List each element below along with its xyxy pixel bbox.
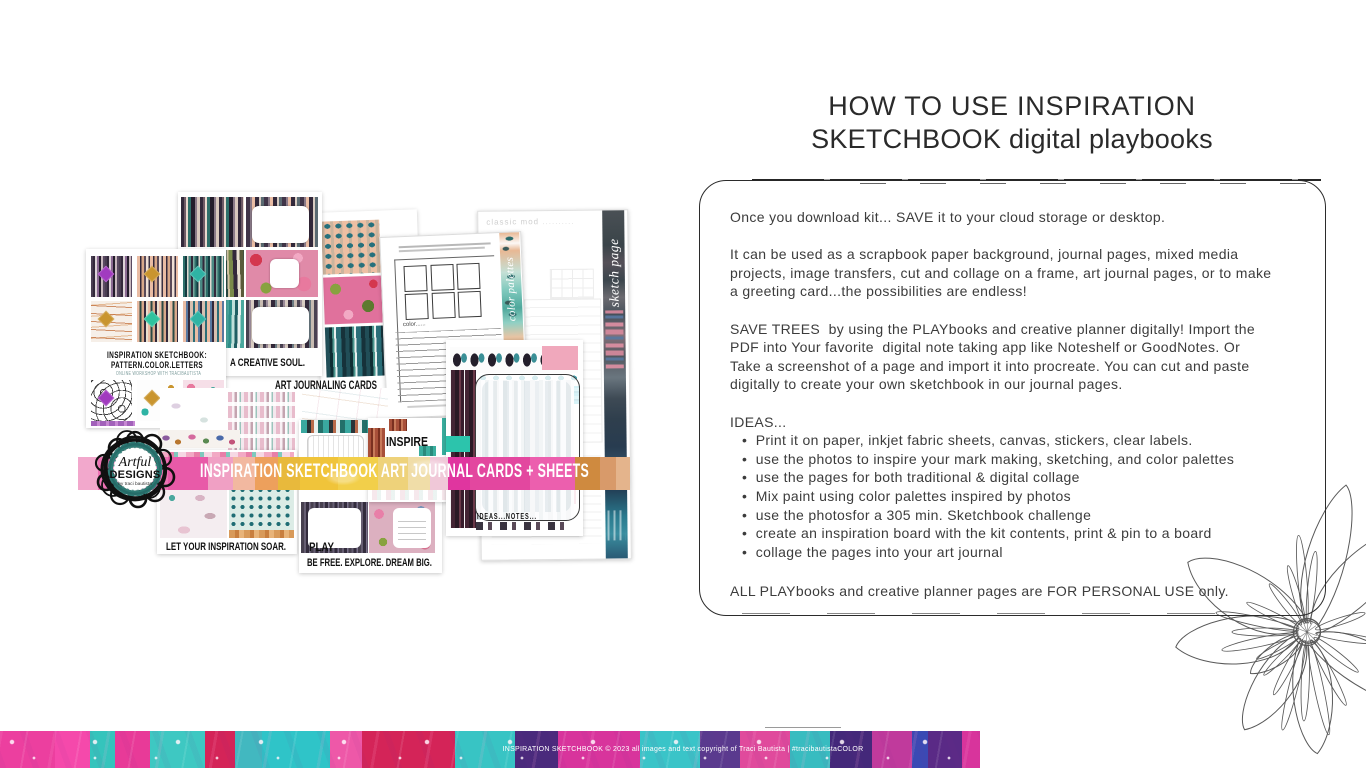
svg-text:DESIGNS: DESIGNS bbox=[110, 469, 161, 481]
svg-text:Artful: Artful bbox=[118, 455, 152, 470]
svg-text:by traci bautista: by traci bautista bbox=[118, 481, 152, 487]
